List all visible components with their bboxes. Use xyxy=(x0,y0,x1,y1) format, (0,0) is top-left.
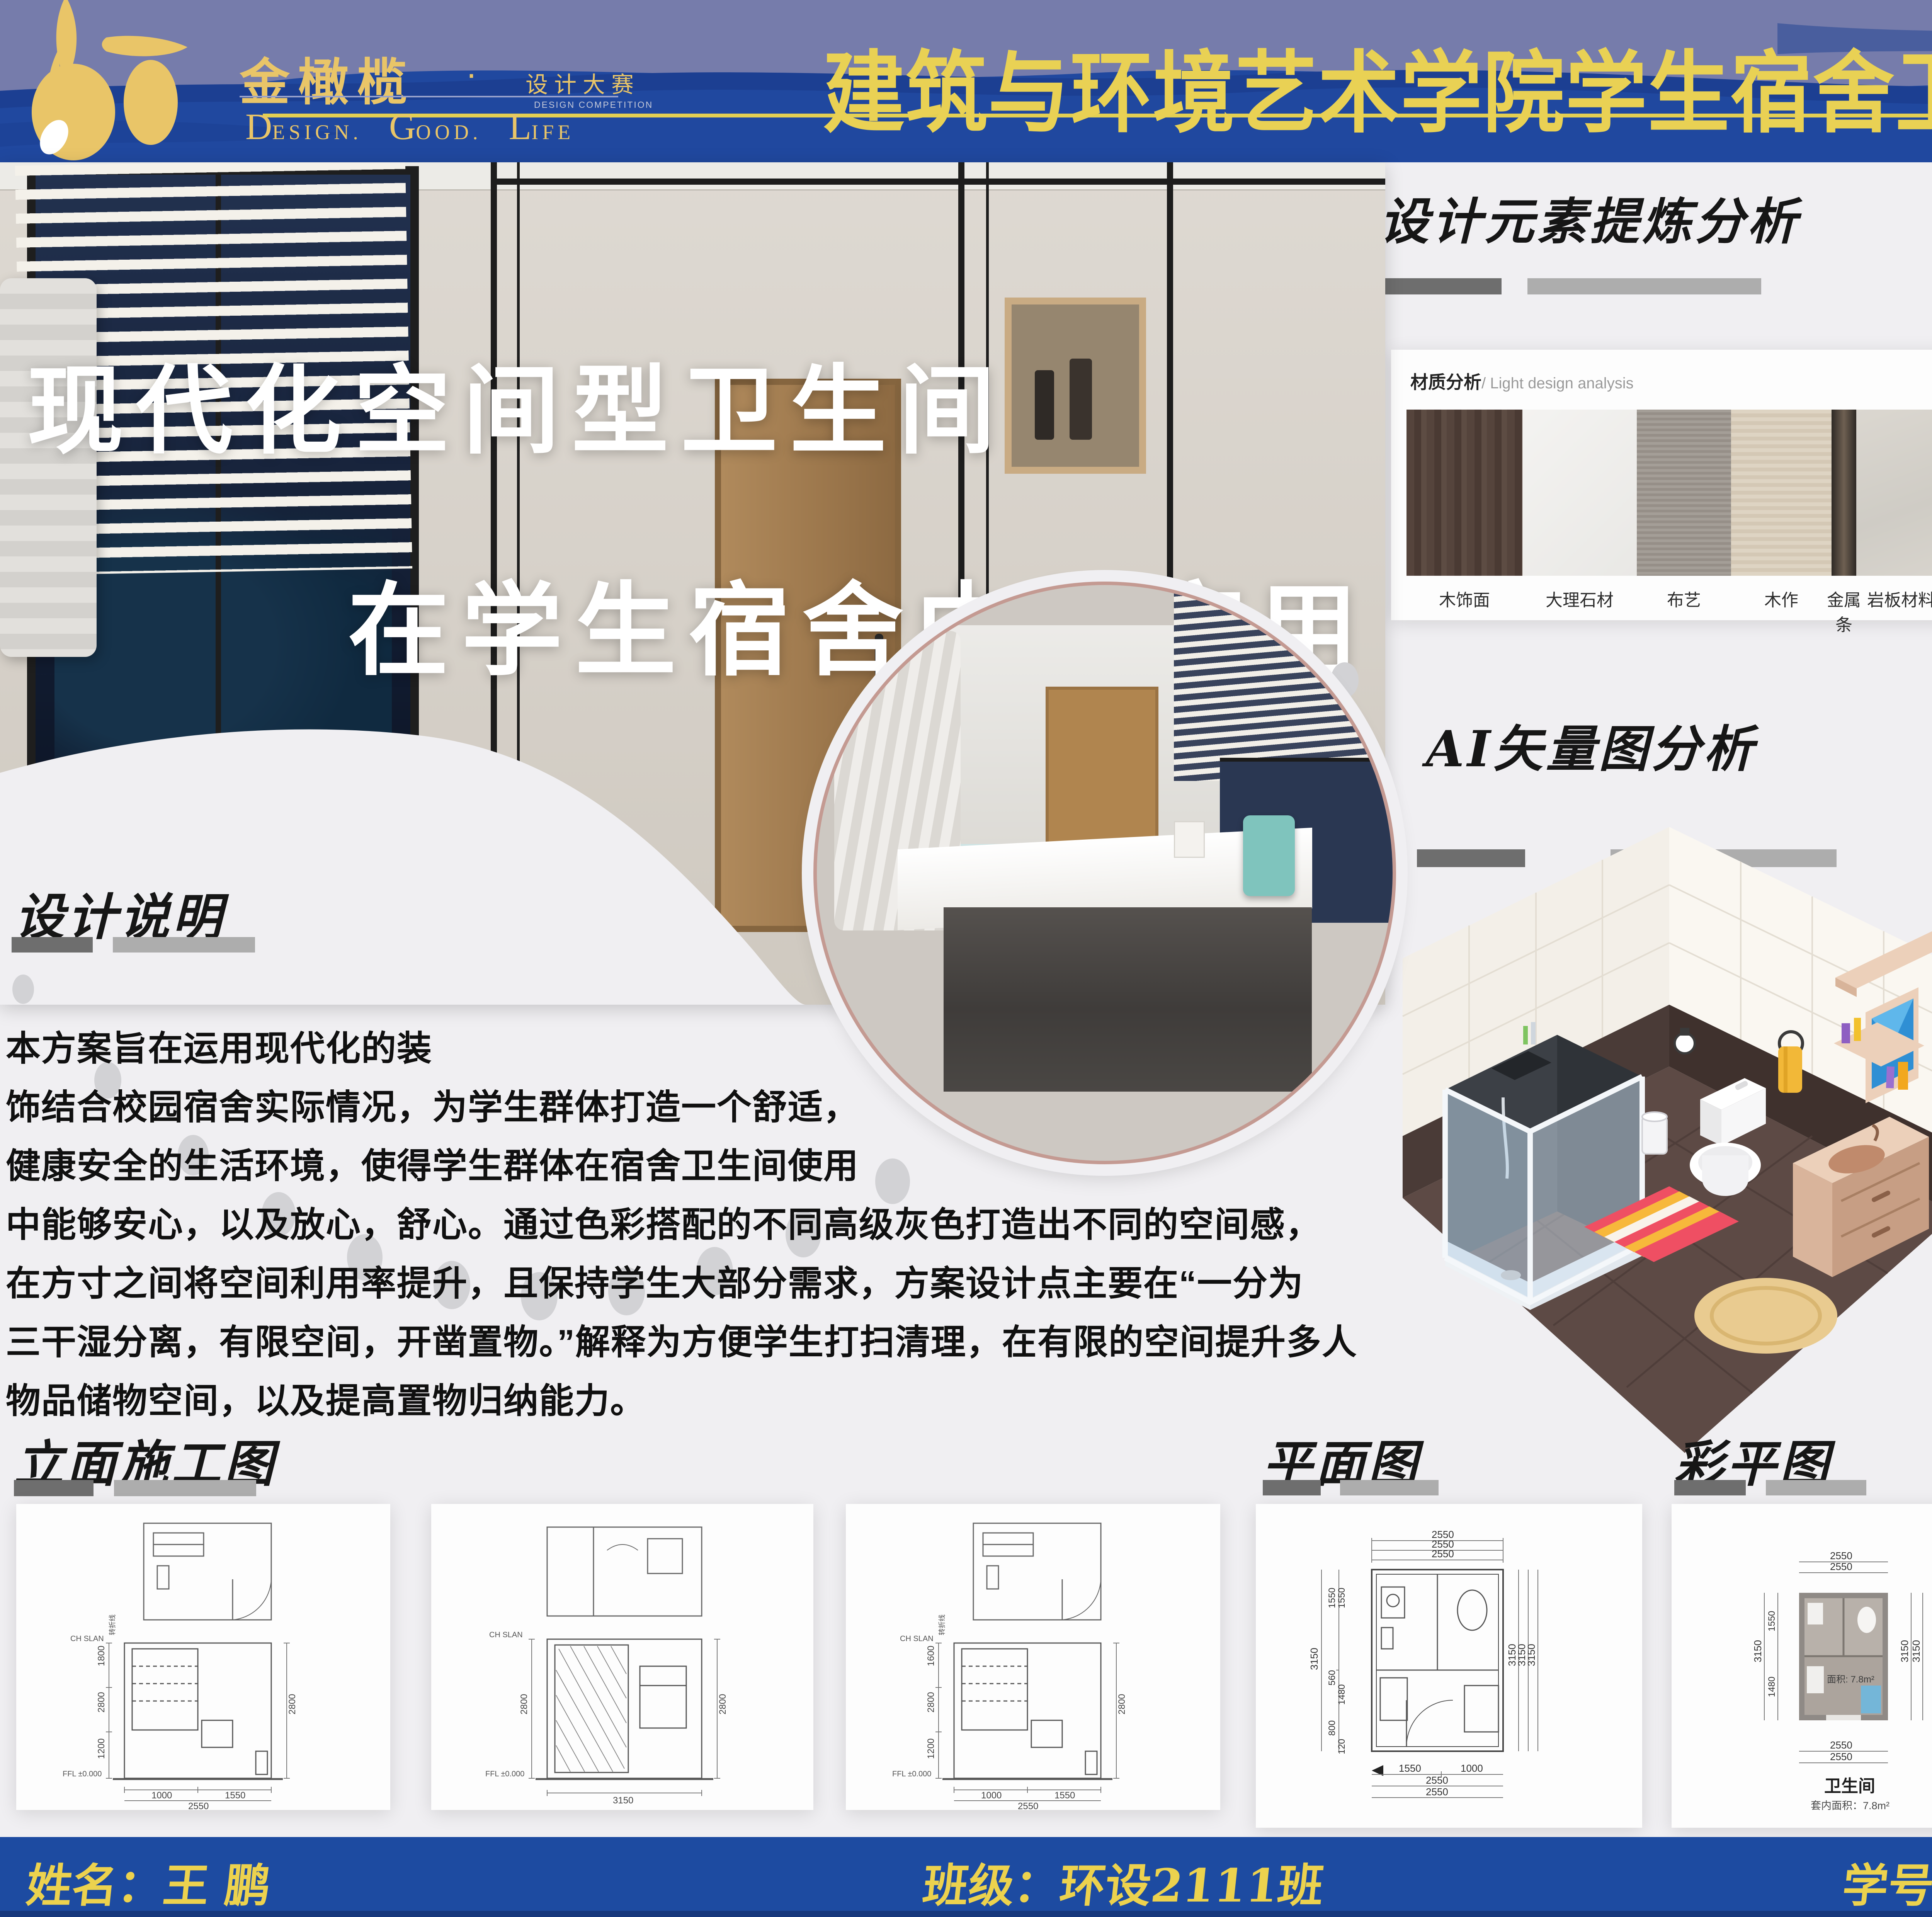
svg-text:800: 800 xyxy=(1327,1720,1337,1736)
title-bar xyxy=(114,1480,256,1496)
svg-text:2800: 2800 xyxy=(718,1694,728,1715)
title-bar xyxy=(12,937,93,953)
socket-icon xyxy=(1174,821,1205,858)
svg-text:2550: 2550 xyxy=(1426,1774,1448,1786)
slogan-word: DESIGN. xyxy=(245,108,362,145)
title-bar xyxy=(1263,1480,1321,1495)
svg-text:1600: 1600 xyxy=(926,1646,936,1666)
brand-divider xyxy=(240,96,618,97)
brand-dot: · xyxy=(466,54,477,94)
material-analysis-card: 材质分析/ Light design analysis 木饰面 大理石材 布艺 … xyxy=(1391,350,1932,620)
elevation-card-3: 1600 2800 1200 2800 1000 1550 2550 CH SL… xyxy=(846,1504,1220,1810)
svg-text:1000: 1000 xyxy=(1461,1762,1483,1774)
material-swatch-wood xyxy=(1406,410,1522,576)
material-swatch-fabric xyxy=(1637,410,1731,576)
desc-line: 本方案旨在运用现代化的装 xyxy=(6,1020,432,1070)
desc-line: 健康安全的生活环境，使得学生群体在宿舍卫生间使用 xyxy=(6,1138,859,1188)
desc-line: 在方寸之间将空间利用率提升，且保持学生大部分需求，方案设计点主要在“一分为 xyxy=(6,1255,1304,1305)
color-plan-drawing: N 面积: 7.8m² 2550 2550 3150 1550 1480 3 xyxy=(1672,1504,1932,1828)
svg-text:2550: 2550 xyxy=(1426,1786,1448,1798)
svg-text:2800: 2800 xyxy=(519,1694,529,1715)
elevation-drawing-1: 1800 2800 1200 2800 1000 1550 2550 CH SL… xyxy=(16,1504,390,1810)
svg-text:1550: 1550 xyxy=(1327,1588,1337,1608)
svg-text:3150: 3150 xyxy=(613,1795,633,1806)
material-card-label: 材质分析/ Light design analysis xyxy=(1410,368,1634,394)
elevation-card-1: 1800 2800 1200 2800 1000 1550 2550 CH SL… xyxy=(16,1504,390,1810)
svg-text:3150: 3150 xyxy=(1910,1640,1922,1662)
isometric-bathroom-illustration xyxy=(1376,796,1932,1472)
section-title-elements: 设计元素提炼分析 xyxy=(1379,182,1800,253)
desc-line: 饰结合校园宿舍实际情况，为学生群体打造一个舒适， xyxy=(6,1079,859,1129)
footer-bottom-strip xyxy=(0,1911,1932,1917)
svg-text:CH SLAN: CH SLAN xyxy=(900,1635,934,1643)
elevation-drawing-3: 1600 2800 1200 2800 1000 1550 2550 CH SL… xyxy=(846,1504,1220,1810)
competition-title: 建筑与环境艺术学院学生宿舍卫生间设计大赛 xyxy=(823,21,1932,150)
svg-text:1550: 1550 xyxy=(1054,1790,1075,1801)
svg-text:1200: 1200 xyxy=(926,1738,936,1759)
competition-poster: 金橄榄 · 设计大赛 DESIGN COMPETITION DESIGN. GO… xyxy=(0,0,1932,1917)
title-bar xyxy=(1766,1480,1866,1495)
svg-text:2550: 2550 xyxy=(1830,1550,1852,1561)
blinds-reflection xyxy=(1174,585,1393,781)
svg-text:CH SLAN: CH SLAN xyxy=(70,1635,104,1643)
svg-text:1480: 1480 xyxy=(1337,1684,1347,1705)
brand-subtitle: 设计大赛 xyxy=(526,66,640,99)
svg-text:1480: 1480 xyxy=(1767,1677,1777,1697)
svg-text:卫生间: 卫生间 xyxy=(1824,1777,1875,1796)
elevation-card-2: 2800 2800 3150 CH SLAN FFL ±0.000 xyxy=(431,1504,813,1810)
svg-text:2800: 2800 xyxy=(287,1694,298,1715)
svg-text:2550: 2550 xyxy=(188,1801,209,1810)
title-bar xyxy=(14,1480,94,1496)
svg-text:1800: 1800 xyxy=(96,1646,107,1666)
title-bar xyxy=(1674,1480,1746,1495)
svg-text:FFL ±0.000: FFL ±0.000 xyxy=(63,1770,102,1778)
svg-text:套内面积：7.8m²: 套内面积：7.8m² xyxy=(1811,1800,1889,1812)
material-swatch-marble xyxy=(1522,410,1637,576)
golden-olive-logo-icon xyxy=(8,0,224,162)
svg-text:3150: 3150 xyxy=(1526,1644,1537,1666)
svg-text:转折线: 转折线 xyxy=(109,1614,116,1635)
svg-text:2800: 2800 xyxy=(96,1692,107,1713)
svg-text:2800: 2800 xyxy=(926,1692,936,1713)
svg-text:FFL ±0.000: FFL ±0.000 xyxy=(485,1770,524,1778)
floor-plan-drawing: 2550 2550 2550 3150 1550 1550 560 1480 8… xyxy=(1256,1504,1642,1828)
svg-text:2800: 2800 xyxy=(1117,1694,1127,1715)
material-label: 木作 xyxy=(1731,586,1832,611)
svg-text:1000: 1000 xyxy=(151,1790,172,1801)
svg-text:120: 120 xyxy=(1337,1739,1347,1754)
svg-text:面积: 7.8m²: 面积: 7.8m² xyxy=(1827,1674,1874,1685)
title-bar xyxy=(1340,1480,1439,1495)
material-label: 木饰面 xyxy=(1406,586,1522,611)
circle-inset-photo xyxy=(813,582,1396,1164)
svg-text:1550: 1550 xyxy=(1399,1762,1421,1774)
desc-line: 三干湿分离，有限空间，开凿置物。”解释为方便学生打扫清理，在有限的空间提升多人 xyxy=(6,1314,1357,1364)
svg-text:2550: 2550 xyxy=(1830,1739,1852,1751)
title-bar xyxy=(1370,278,1502,294)
title-bar xyxy=(1527,278,1761,294)
svg-text:3150: 3150 xyxy=(1899,1640,1910,1662)
svg-text:1000: 1000 xyxy=(981,1790,1002,1801)
svg-text:2550: 2550 xyxy=(1432,1548,1454,1560)
header-banner: 金橄榄 · 设计大赛 DESIGN COMPETITION DESIGN. GO… xyxy=(0,0,1932,162)
slogan-word: GOOD. xyxy=(389,108,482,145)
color-plan-card: N 面积: 7.8m² 2550 2550 3150 1550 1480 3 xyxy=(1672,1504,1932,1828)
title-bar xyxy=(113,937,255,953)
material-swatch-stone xyxy=(1856,410,1932,576)
footer-class: 班级：环设2111班 xyxy=(920,1849,1327,1915)
hair-dryer-icon xyxy=(1243,815,1295,896)
section-title-ai: AI矢量图分析 xyxy=(1426,709,1756,781)
hero-title-line1: 现代化空间型卫生间 xyxy=(27,332,1008,472)
desc-line: 中能够安心，以及放心，舒心。通过色彩搭配的不同高级灰色打造出不同的空间感， xyxy=(6,1196,1321,1247)
slogan-word: LIFE xyxy=(509,108,575,145)
vanity-drawers xyxy=(944,907,1312,1092)
elevation-drawing-2: 2800 2800 3150 CH SLAN FFL ±0.000 xyxy=(431,1504,813,1810)
svg-text:1550: 1550 xyxy=(1337,1588,1347,1608)
footer-student-id: 学号：202140960 xyxy=(1840,1849,1932,1915)
footer-bar: 姓名：王 鹏 班级：环设2111班 学号：202140960 xyxy=(0,1837,1932,1917)
material-label: 大理石材 xyxy=(1522,586,1637,611)
material-swatch-woodwork xyxy=(1731,410,1832,576)
svg-text:FFL ±0.000: FFL ±0.000 xyxy=(892,1770,931,1778)
svg-text:1200: 1200 xyxy=(96,1738,107,1759)
svg-text:3150: 3150 xyxy=(1752,1640,1764,1662)
material-label: 布艺 xyxy=(1637,586,1731,611)
footer-name: 姓名：王 鹏 xyxy=(24,1849,274,1915)
mirror-door-reflection xyxy=(1046,687,1159,846)
floor-plan-card: 2550 2550 2550 3150 1550 1550 560 1480 8… xyxy=(1256,1504,1642,1828)
svg-text:1550: 1550 xyxy=(225,1790,245,1801)
svg-text:转折线: 转折线 xyxy=(938,1614,946,1635)
desc-line: 物品储物空间，以及提高置物归纳能力。 xyxy=(6,1373,646,1423)
material-label: 岩板材料 xyxy=(1856,586,1932,611)
svg-text:2550: 2550 xyxy=(1830,1561,1852,1572)
svg-text:2550: 2550 xyxy=(1018,1801,1038,1810)
svg-text:2550: 2550 xyxy=(1830,1751,1852,1762)
svg-text:1550: 1550 xyxy=(1767,1611,1777,1631)
brand-name: 金橄榄 xyxy=(240,42,416,114)
brand-slogan: DESIGN. GOOD. LIFE xyxy=(245,108,574,145)
svg-text:560: 560 xyxy=(1327,1670,1337,1686)
material-swatch-metal xyxy=(1832,410,1856,576)
svg-text:CH SLAN: CH SLAN xyxy=(489,1631,523,1639)
svg-text:3150: 3150 xyxy=(1308,1648,1320,1670)
